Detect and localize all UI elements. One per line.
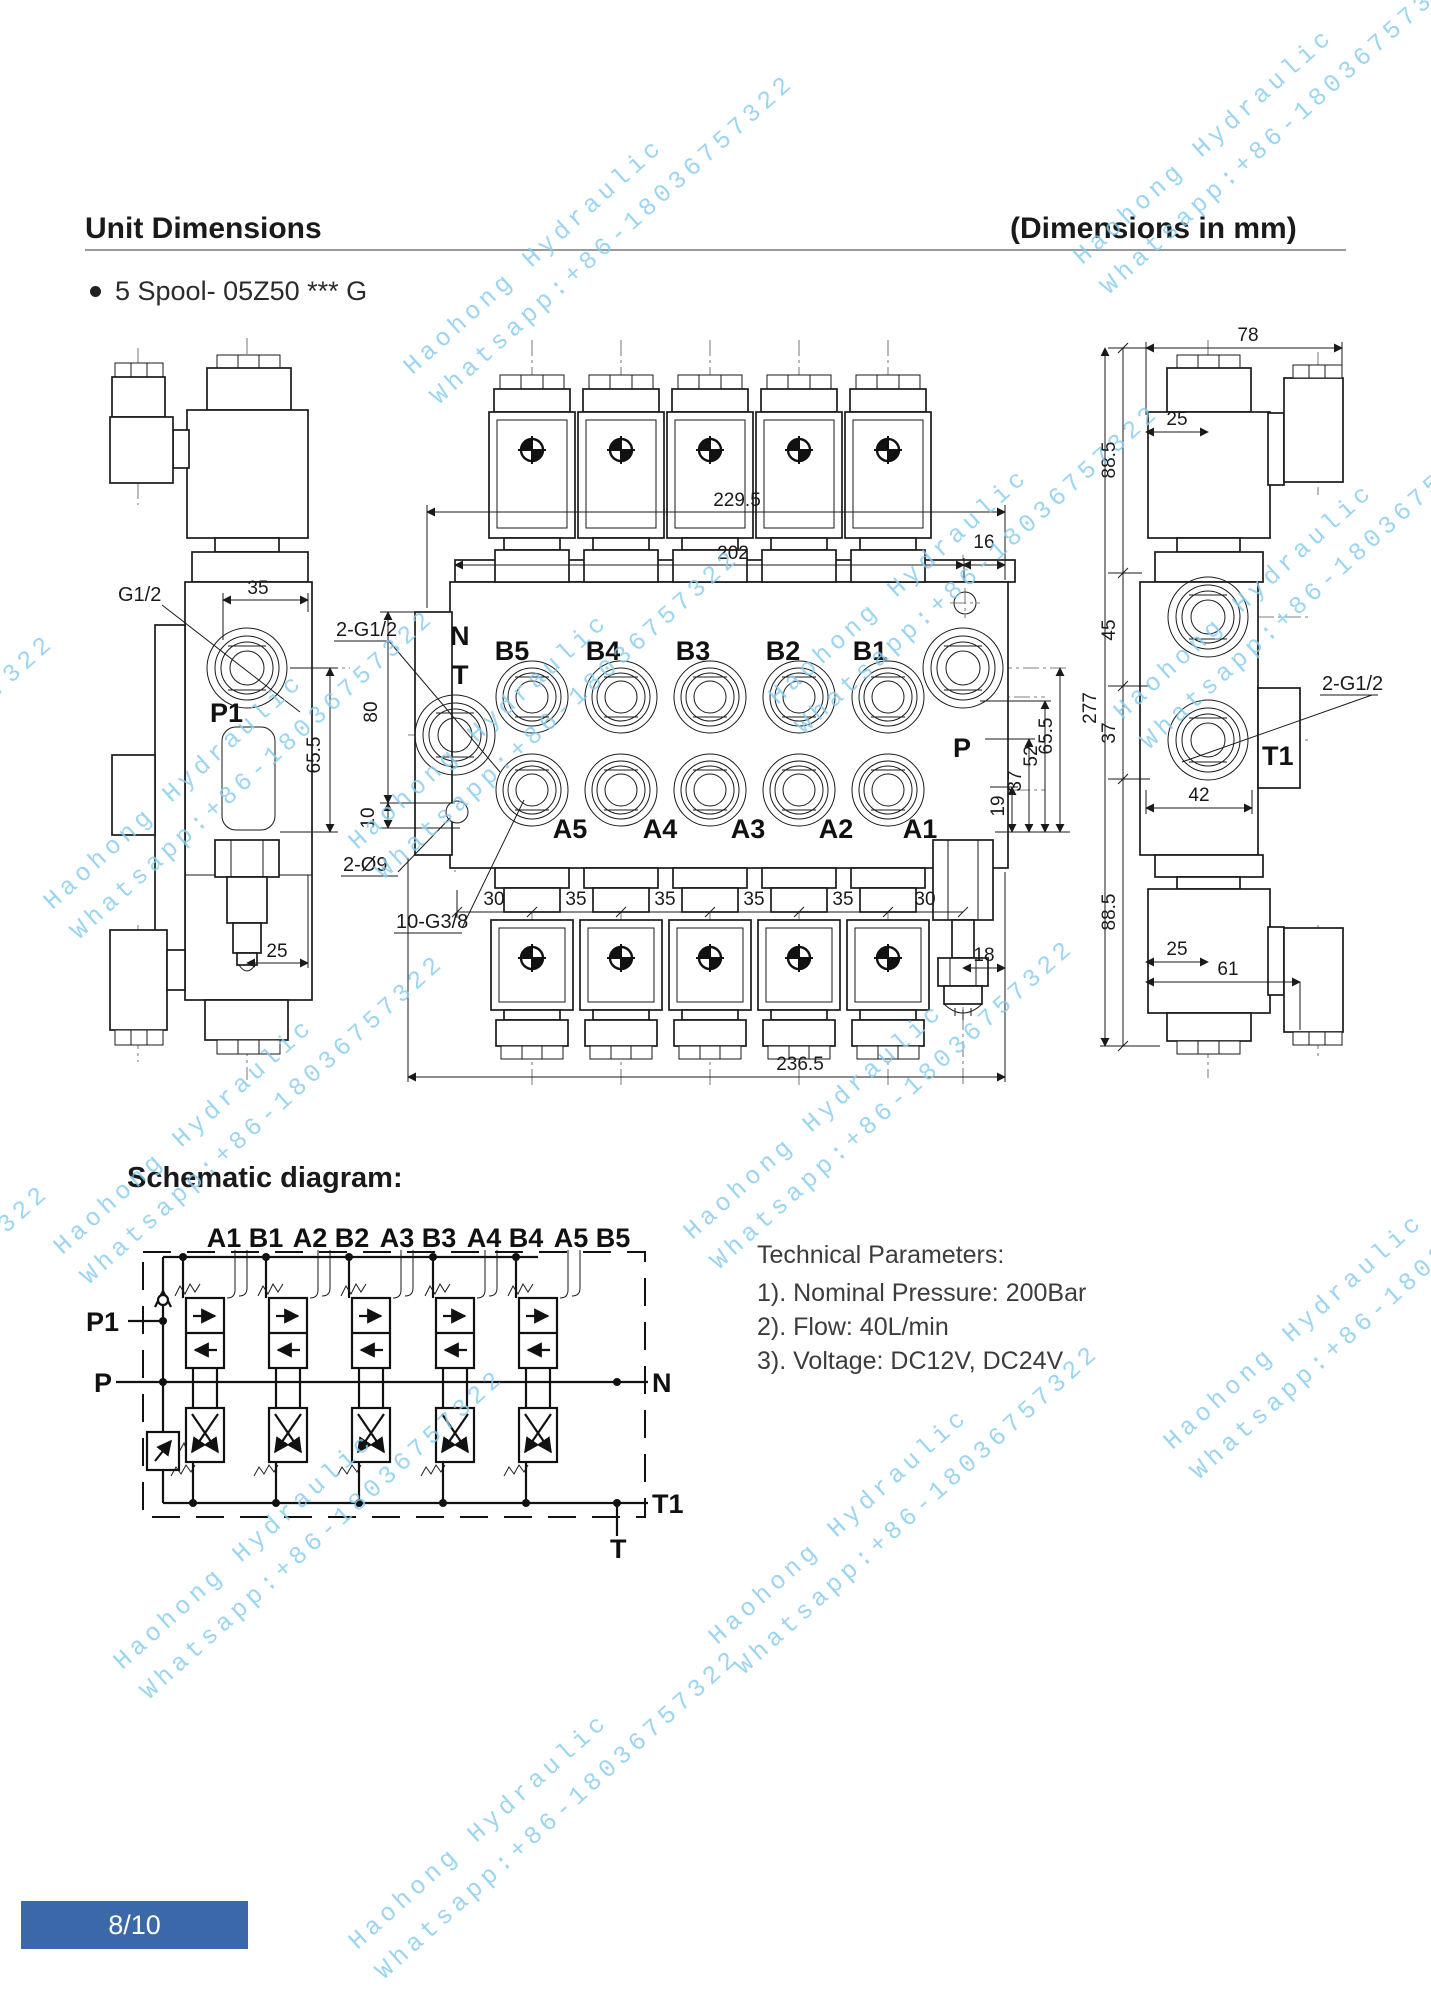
dim-35: 35 [247, 578, 268, 599]
tech-item-voltage: 3). Voltage: DC12V, DC24V [757, 1344, 1086, 1378]
port-label-t1: T1 [1262, 741, 1294, 771]
dim-seg-35b: 35 [654, 889, 675, 910]
schem-label-t: T [610, 1534, 627, 1564]
page-number-badge: 8/10 [21, 1901, 248, 1949]
schem-label-a2b2: A2 B2 [293, 1225, 370, 1253]
port-label-a3: A3 [731, 814, 766, 844]
port-label-a5: A5 [553, 814, 588, 844]
schematic-heading: Schematic diagram: [127, 1162, 403, 1195]
dim-37-right: 37 [1099, 722, 1120, 743]
page-number: 8/10 [108, 1910, 161, 1941]
dim-seg-30a: 30 [483, 889, 504, 910]
schem-label-a5b5: A5 B5 [554, 1225, 631, 1253]
port-label-p: P [953, 733, 971, 763]
front-view: B5 B4 B3 B2 B1 A5 A4 A3 A2 A1 N T P 2-G1… [334, 340, 1070, 1085]
port-label-t: T [452, 660, 469, 690]
dim-18: 18 [973, 945, 994, 966]
watermark: Haohong HydraulicWhatsapp:+86-1803675732… [340, 1610, 750, 1991]
port-label-b3: B3 [676, 636, 711, 666]
right-side-view: T1 2-G1/2 78 25 42 25 61 277 [1080, 325, 1383, 1078]
dim-19: 19 [988, 795, 1009, 816]
port-label-b5: B5 [495, 636, 530, 666]
dim-78: 78 [1237, 325, 1258, 346]
dim-10: 10 [358, 807, 379, 828]
dim-80: 80 [361, 701, 382, 722]
watermark: Haohong HydraulicWhatsapp:+86-1803675732… [1065, 0, 1431, 305]
port-label-b2: B2 [766, 636, 801, 666]
dim-16: 16 [973, 532, 994, 553]
schem-label-a1b1: A1 B1 [207, 1225, 284, 1253]
units-note: (Dimensions in mm) [1010, 212, 1297, 246]
dim-25-top: 25 [1166, 409, 1187, 430]
port-label-b1: B1 [853, 636, 888, 666]
dim-seg-30b: 30 [914, 889, 935, 910]
dim-65-5-front: 65.5 [1036, 718, 1057, 755]
dim-88-5-bot: 88.5 [1099, 894, 1120, 931]
schem-label-t1: T1 [652, 1489, 684, 1519]
header-rule [85, 249, 1346, 251]
dim-seg-35d: 35 [832, 889, 853, 910]
dim-37-front: 37 [1005, 770, 1026, 791]
left-side-view: G1/2 P1 35 65.5 25 [110, 338, 350, 1080]
tech-heading: Technical Parameters: [757, 1238, 1086, 1272]
datasheet-page: Unit Dimensions (Dimensions in mm) 5 Spo… [0, 0, 1431, 2006]
bullet-dot-icon [90, 286, 101, 297]
tech-item-flow: 2). Flow: 40L/min [757, 1310, 1086, 1344]
port-label-a4: A4 [643, 814, 678, 844]
callout-2o9: 2-Ø9 [343, 854, 387, 876]
dim-65-5-left: 65.5 [304, 737, 325, 774]
model-bullet: 5 Spool- 05Z50 *** G [90, 276, 367, 307]
port-label-b4: B4 [586, 636, 621, 666]
dim-88-5-top: 88.5 [1099, 442, 1120, 479]
callout-2g12-right: 2-G1/2 [1322, 673, 1383, 695]
watermark: Haohong HydraulicWhatsapp:+86-1803675732… [0, 1145, 60, 1526]
model-label: 5 Spool- 05Z50 *** G [115, 276, 367, 307]
dimension-drawing: G1/2 P1 35 65.5 25 [0, 320, 1431, 1110]
dim-277: 277 [1080, 692, 1101, 724]
dim-seg-35a: 35 [565, 889, 586, 910]
schem-label-a4b4: A4 B4 [467, 1225, 544, 1253]
watermark: Haohong HydraulicWhatsapp:+86-1803675732… [1155, 1110, 1431, 1491]
label-g12: G1/2 [118, 584, 161, 606]
schem-label-p: P [94, 1368, 112, 1398]
port-label-a1: A1 [903, 814, 938, 844]
dim-229-5: 229.5 [713, 490, 761, 511]
dim-seg-35c: 35 [743, 889, 764, 910]
dim-25-bot: 25 [1166, 939, 1187, 960]
port-label-a2: A2 [819, 814, 854, 844]
dim-25-left: 25 [266, 941, 287, 962]
schem-sections [171, 1250, 580, 1507]
schem-label-p1: P1 [86, 1307, 119, 1337]
page-title: Unit Dimensions [85, 212, 322, 246]
schem-label-n: N [652, 1368, 672, 1398]
dim-236-5: 236.5 [776, 1054, 824, 1075]
dim-45: 45 [1099, 619, 1120, 640]
port-label-n: N [450, 621, 470, 651]
label-p1: P1 [210, 698, 243, 728]
schem-label-a3b3: A3 B3 [380, 1225, 457, 1253]
dim-202: 202 [717, 543, 749, 564]
tech-item-pressure: 1). Nominal Pressure: 200Bar [757, 1276, 1086, 1310]
dim-61: 61 [1217, 959, 1238, 980]
schematic-diagram: A1 B1 A2 B2 A3 B3 A4 B4 A5 B5 P1 P N [70, 1225, 710, 1585]
dim-42: 42 [1188, 785, 1209, 806]
technical-parameters: Technical Parameters: 1). Nominal Pressu… [757, 1238, 1086, 1378]
